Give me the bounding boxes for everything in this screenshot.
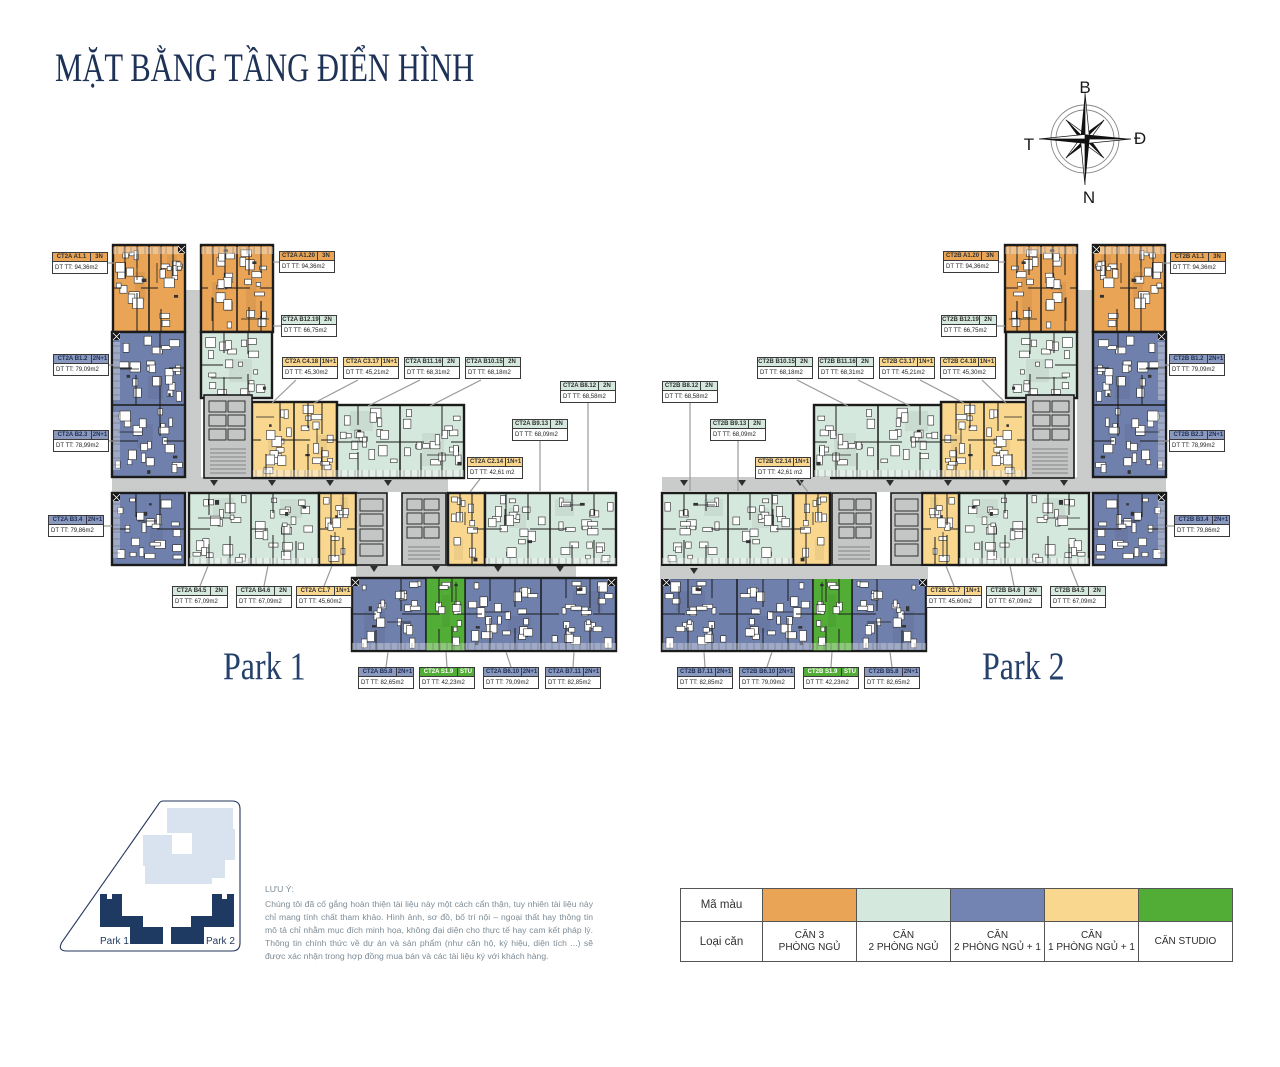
svg-text:T: T xyxy=(1024,135,1034,154)
svg-text:B: B xyxy=(1079,78,1090,97)
svg-text:N: N xyxy=(1083,188,1095,207)
svg-text:Đ: Đ xyxy=(1134,129,1146,148)
